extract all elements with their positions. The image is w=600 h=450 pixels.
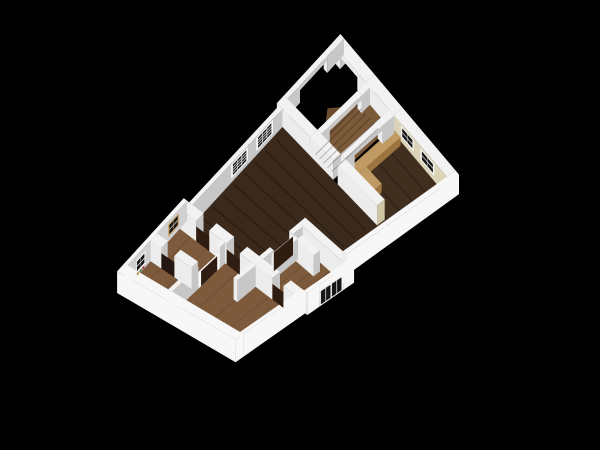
bedroom-french-door-muntin	[336, 280, 337, 294]
wing-stub-wall-face-sw	[234, 278, 238, 303]
floorplan-3d-viewport[interactable]	[0, 0, 600, 450]
floorplan-3d-render[interactable]	[0, 0, 600, 450]
bedroom-french-door-muntin	[325, 288, 326, 302]
